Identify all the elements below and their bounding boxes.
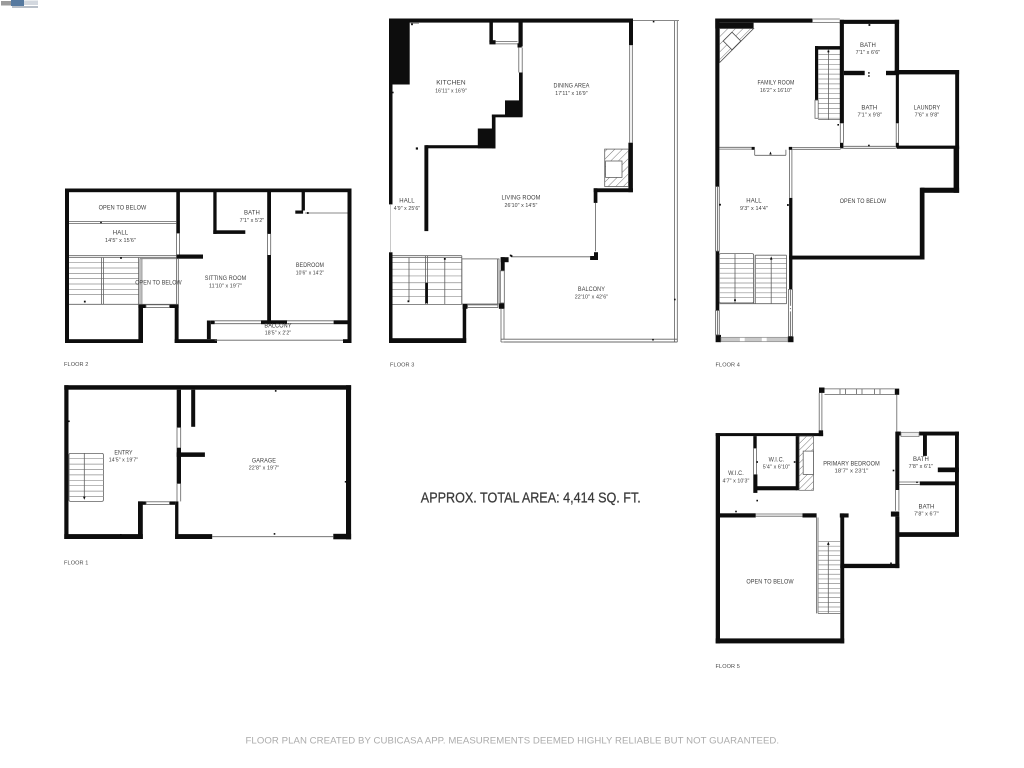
svg-text:HALL: HALL: [399, 199, 415, 205]
svg-text:OPEN TO BELOW: OPEN TO BELOW: [840, 199, 887, 205]
svg-text:4'7" x 10'3": 4'7" x 10'3": [723, 479, 750, 485]
svg-text:W.I.C.: W.I.C.: [769, 458, 785, 464]
svg-text:LIVING ROOM: LIVING ROOM: [502, 196, 541, 202]
svg-text:14'5" x 15'6": 14'5" x 15'6": [105, 238, 136, 244]
svg-text:OPEN TO BELOW: OPEN TO BELOW: [99, 206, 147, 212]
svg-text:18'5" x 2'2": 18'5" x 2'2": [265, 331, 292, 337]
svg-text:FLOOR 4: FLOOR 4: [716, 363, 741, 369]
svg-text:FLOOR 5: FLOOR 5: [716, 664, 741, 670]
svg-text:BEDROOM: BEDROOM: [296, 263, 324, 269]
svg-text:BATH: BATH: [244, 211, 260, 217]
svg-text:ENTRY: ENTRY: [114, 451, 132, 457]
svg-text:26'10" x 14'5": 26'10" x 14'5": [505, 203, 538, 209]
svg-text:FLOOR 2: FLOOR 2: [64, 362, 89, 368]
svg-text:16'11" x 16'9": 16'11" x 16'9": [435, 89, 467, 95]
svg-text:FLOOR PLAN CREATED BY CUBICASA: FLOOR PLAN CREATED BY CUBICASA APP. MEAS…: [246, 735, 780, 746]
svg-text:7'8" x 6'7": 7'8" x 6'7": [914, 512, 939, 518]
svg-text:PRIMARY BEDROOM: PRIMARY BEDROOM: [823, 461, 880, 467]
svg-text:FLOOR 1: FLOOR 1: [64, 561, 89, 567]
svg-text:18'7" x 23'1": 18'7" x 23'1": [835, 468, 869, 474]
svg-text:7'6" x 9'8": 7'6" x 9'8": [915, 113, 940, 119]
svg-text:BATH: BATH: [860, 43, 876, 49]
svg-text:7'1" x 6'6": 7'1" x 6'6": [856, 50, 881, 56]
svg-text:OPEN TO BELOW: OPEN TO BELOW: [135, 281, 182, 287]
svg-text:FAMILY ROOM: FAMILY ROOM: [758, 81, 795, 87]
svg-text:BATH: BATH: [913, 457, 929, 463]
svg-text:16'2" x 16'10": 16'2" x 16'10": [760, 88, 792, 94]
svg-text:7'8" x 6'1": 7'8" x 6'1": [909, 464, 934, 470]
svg-text:7'1" x 9'8": 7'1" x 9'8": [857, 113, 882, 119]
svg-text:W.I.C.: W.I.C.: [728, 471, 744, 477]
svg-text:4'9" x 25'6": 4'9" x 25'6": [394, 206, 421, 212]
svg-text:FLOOR 3: FLOOR 3: [390, 363, 415, 369]
svg-text:10'6" x 14'2": 10'6" x 14'2": [296, 271, 325, 277]
svg-text:LAUNDRY: LAUNDRY: [914, 106, 941, 112]
svg-text:11'10" x 19'7": 11'10" x 19'7": [209, 284, 242, 290]
svg-text:17'11" x 16'9": 17'11" x 16'9": [555, 91, 588, 97]
svg-text:HALL: HALL: [746, 199, 762, 205]
svg-text:BATH: BATH: [919, 505, 935, 511]
svg-text:22'8" x 19'7": 22'8" x 19'7": [249, 466, 280, 472]
svg-text:14'5" x 19'7": 14'5" x 19'7": [109, 458, 139, 464]
svg-text:9'3" x 14'4": 9'3" x 14'4": [740, 206, 768, 212]
svg-text:OPEN TO BELOW: OPEN TO BELOW: [746, 580, 794, 586]
svg-text:BALCONY: BALCONY: [264, 324, 291, 330]
svg-text:DINING AREA: DINING AREA: [554, 84, 590, 90]
svg-text:SITTING ROOM: SITTING ROOM: [205, 276, 247, 282]
svg-text:22'10" x 42'6": 22'10" x 42'6": [575, 295, 609, 301]
svg-text:7'1" x 5'2": 7'1" x 5'2": [240, 218, 265, 224]
svg-text:KITCHEN: KITCHEN: [436, 81, 466, 87]
svg-text:5'4" x 6'10": 5'4" x 6'10": [763, 465, 791, 471]
svg-text:HALL: HALL: [113, 231, 129, 237]
svg-text:GARAGE: GARAGE: [252, 459, 276, 465]
svg-text:BATH: BATH: [861, 106, 877, 112]
svg-text:APPROX. TOTAL AREA: 4,414 SQ.: APPROX. TOTAL AREA: 4,414 SQ. FT.: [421, 489, 641, 506]
svg-text:BALCONY: BALCONY: [578, 287, 605, 293]
